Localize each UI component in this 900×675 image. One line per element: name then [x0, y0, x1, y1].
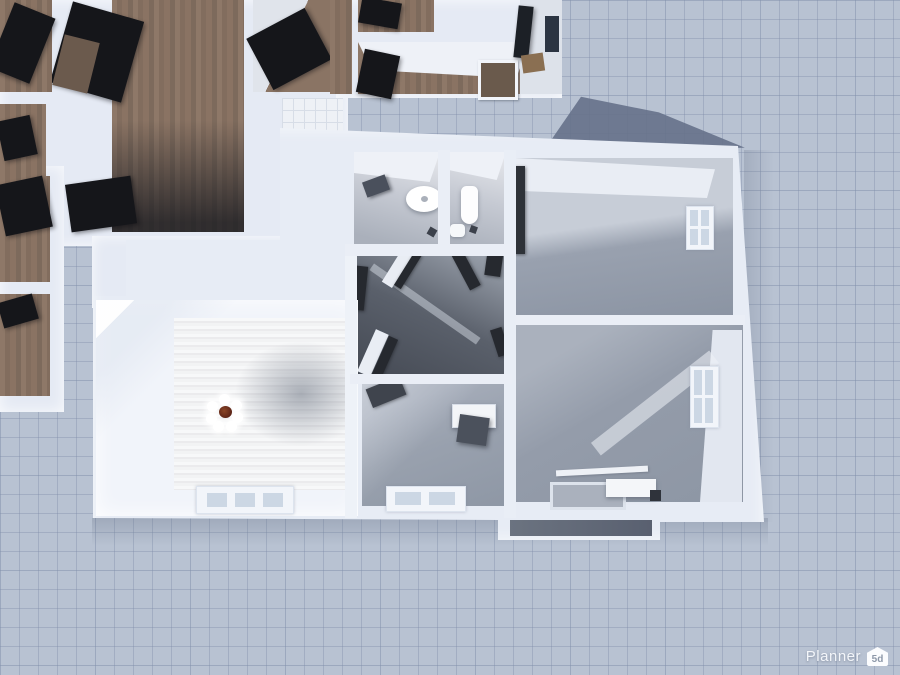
planner5d-watermark: Planner 5d [806, 647, 888, 666]
toilet [450, 224, 465, 237]
watermark-logo-text: 5d [872, 653, 884, 666]
living-room-window-south [196, 486, 294, 514]
living-room-soft-shadow [174, 318, 346, 490]
window-pane [235, 493, 255, 507]
window-pane [705, 398, 713, 423]
washbasin-drain [421, 196, 428, 202]
window-pane [263, 493, 283, 507]
wall-divider-hall-right [504, 150, 516, 518]
window-pane [701, 229, 709, 245]
window-pane [395, 492, 421, 505]
window-pane [705, 370, 713, 395]
balcony-floor [510, 520, 652, 536]
desk-furniture [65, 176, 137, 233]
chandelier-globe [207, 401, 218, 412]
study-room-window-south [386, 486, 466, 512]
chandelier-center [219, 406, 232, 418]
upper-room-mid-woodband [330, 0, 352, 94]
3d-viewport[interactable]: Planner 5d [0, 0, 900, 675]
window-pane [690, 229, 698, 245]
chandelier [206, 394, 246, 432]
room-bottom-right-window-east [690, 366, 719, 428]
wall-divider-rooms-right [515, 315, 745, 325]
counter-cabinet [606, 479, 656, 497]
upper-room-corner-door [521, 53, 545, 74]
chandelier-globe [213, 421, 224, 432]
upper-room-top-2-doorframe [478, 60, 518, 100]
window-pane [690, 210, 698, 226]
wall-divider-bath [438, 150, 450, 250]
watermark-brand-text: Planner [806, 648, 861, 665]
planner5d-logo-icon: 5d [867, 647, 888, 666]
window-pane [701, 210, 709, 226]
window-pane [694, 370, 702, 395]
window-pane [429, 492, 455, 505]
building-shadow-bottom [92, 518, 768, 546]
wall-divider-bath-hall [345, 244, 515, 256]
pedestal-sink [461, 186, 478, 224]
desk-chair [456, 414, 490, 446]
bedroom-window-east [686, 206, 714, 250]
chandelier-globe [231, 400, 242, 411]
wall-divider-living [345, 256, 357, 518]
chandelier-globe [226, 421, 237, 432]
chandelier-globe [219, 394, 230, 405]
window-pane [694, 398, 702, 423]
window-pane [207, 493, 227, 507]
wall-divider-hall-study [350, 374, 512, 384]
upper-room-corner-picture-2 [545, 16, 559, 52]
counter-dark-endcap [650, 490, 661, 501]
